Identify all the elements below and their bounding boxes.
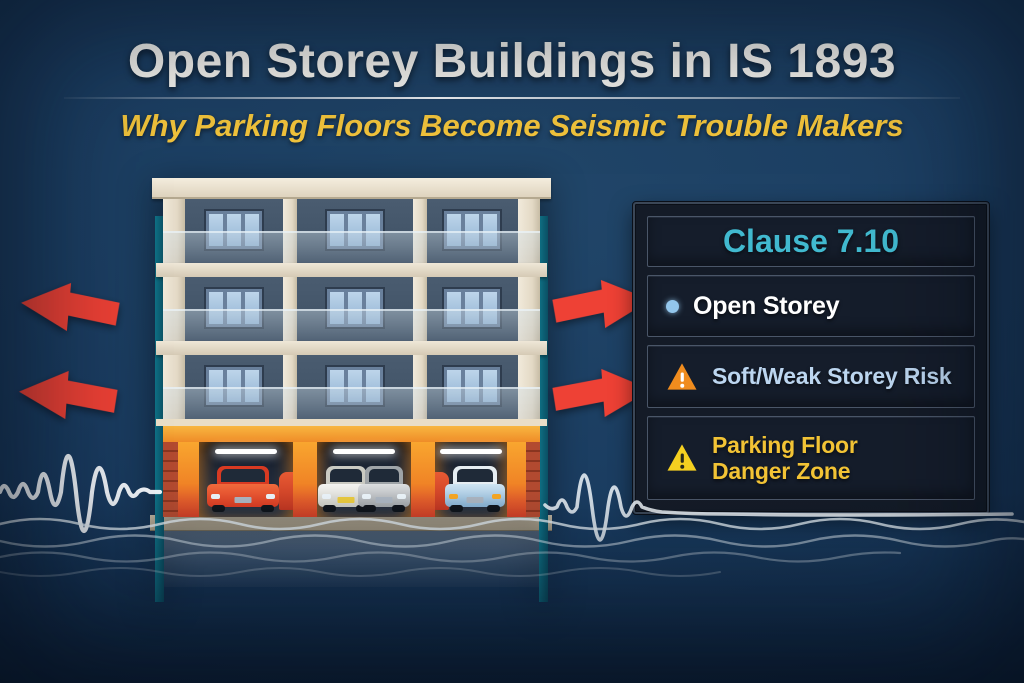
panel-item-label: Open Storey: [693, 292, 839, 321]
floor-slab: [156, 263, 547, 277]
panel-item-label: Parking Floor Danger Zone: [712, 432, 892, 485]
car-silver-icon: [358, 466, 410, 510]
brick-pier: [163, 442, 178, 517]
balcony-glass: [163, 231, 540, 263]
ground-slab: [150, 515, 552, 531]
seismic-waveform-left-icon: [0, 456, 160, 531]
clause-title: Clause 7.10: [723, 223, 899, 260]
parking-beam: [163, 426, 540, 442]
header: Open Storey Buildings in IS 1893 Why Par…: [0, 0, 1024, 144]
parking-column: [178, 442, 199, 517]
foundation-block: [160, 530, 544, 587]
roof-slab: [152, 178, 551, 199]
ceiling-light-icon: [440, 449, 502, 454]
parking-bay: [435, 442, 507, 517]
balcony-glass: [163, 309, 540, 341]
clause-panel: Clause 7.10 Open Storey Soft/Weak Storey…: [633, 202, 989, 514]
panel-item-parking-danger: Parking Floor Danger Zone: [647, 416, 975, 500]
parking-bay: [199, 442, 293, 517]
brick-pier: [526, 442, 540, 517]
storey-1: [163, 355, 540, 419]
parking-interior: [163, 442, 540, 517]
parking-column: [411, 442, 435, 517]
car-red-icon: [207, 466, 279, 510]
page-subtitle: Why Parking Floors Become Seismic Troubl…: [0, 108, 1024, 144]
red-arrow-left-top-icon: [16, 277, 122, 338]
page-title: Open Storey Buildings in IS 1893: [0, 34, 1024, 89]
panel-item-soft-storey-risk: Soft/Weak Storey Risk: [647, 345, 975, 408]
parking-storey: [163, 419, 540, 517]
car-blue-icon: [445, 466, 505, 510]
infographic-canvas: { "header": { "title": "Open Storey Buil…: [0, 0, 1024, 683]
building-illustration: [163, 178, 540, 517]
red-arrow-left-bottom-icon: [14, 366, 119, 425]
storey-2: [163, 277, 540, 341]
bullet-icon: [666, 300, 679, 313]
clause-header: Clause 7.10: [647, 216, 975, 267]
ceiling-light-icon: [215, 449, 277, 454]
ceiling-light-icon: [333, 449, 395, 454]
parking-column: [293, 442, 317, 517]
floor-slab: [156, 341, 547, 355]
parking-slab: [156, 419, 547, 426]
title-divider: [64, 97, 960, 99]
storey-3: [163, 199, 540, 263]
warning-triangle-yellow-icon: [666, 443, 698, 472]
panel-item-label: Soft/Weak Storey Risk: [712, 363, 952, 389]
warning-triangle-orange-icon: [666, 362, 698, 391]
parking-column: [507, 442, 526, 517]
parking-bay: [317, 442, 411, 517]
balcony-glass: [163, 387, 540, 419]
panel-item-open-storey: Open Storey: [647, 275, 975, 338]
